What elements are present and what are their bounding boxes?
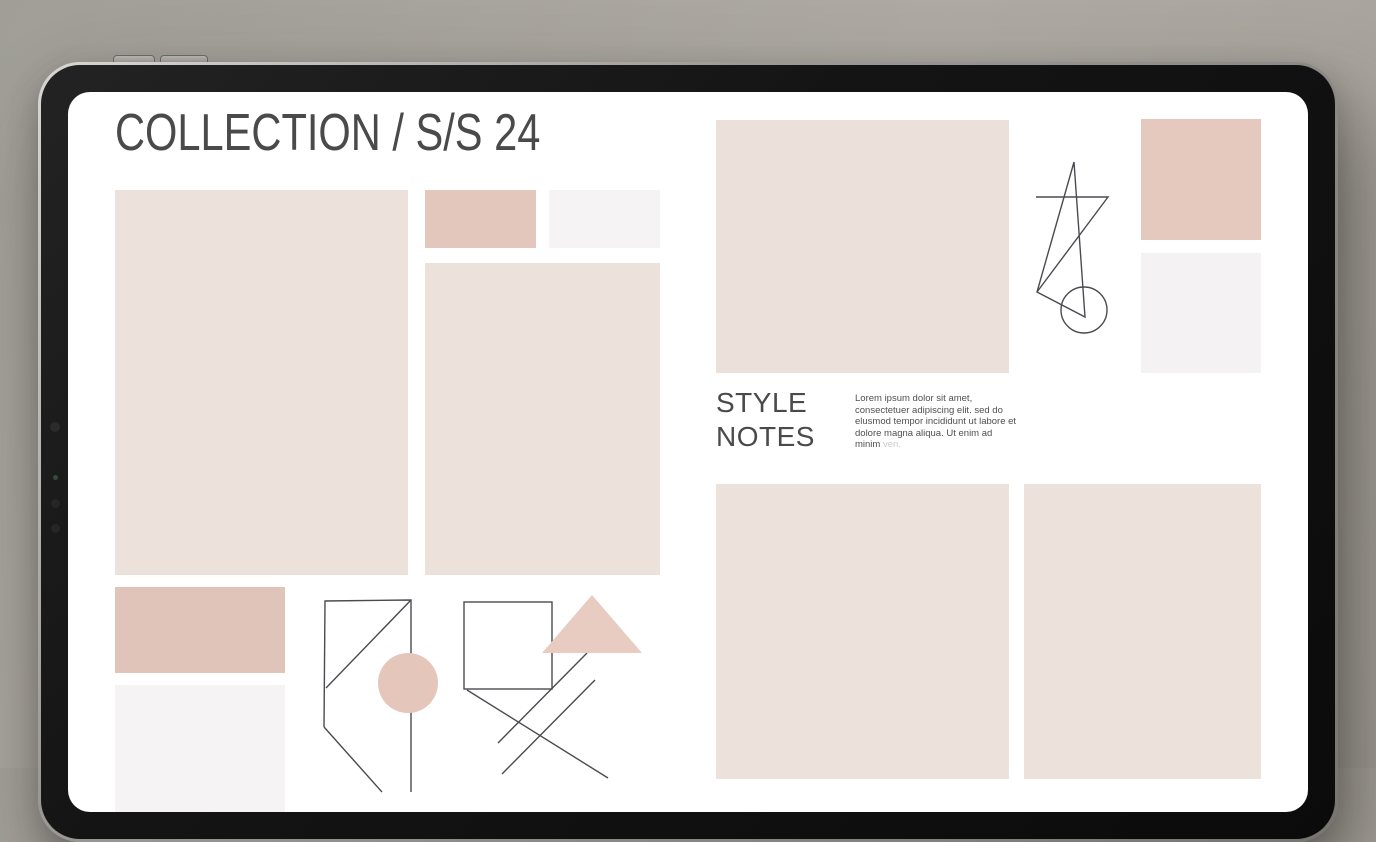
camera-indicator-icon (53, 475, 58, 480)
style-notes-heading-line2: NOTES (716, 421, 815, 452)
moodboard-swatch-bottom-left (716, 484, 1009, 779)
line-art-pentagon-circle-figure (324, 600, 438, 792)
moodboard-swatch-top-right-pink (1141, 119, 1261, 240)
front-camera-icon (50, 422, 60, 432)
moodboard-swatch-mid-pink (425, 190, 536, 248)
moodboard-swatch-mid-gray (549, 190, 660, 248)
moodboard-swatch-left-large (115, 190, 408, 575)
moodboard-swatch-bottom-right (1024, 484, 1261, 779)
tablet-device: COLLECTION / S/S 24 (38, 62, 1338, 842)
sensor-dot-icon (51, 524, 60, 533)
moodboard-swatch-mid-tall (425, 263, 660, 575)
line-art-square-triangle-figure (464, 595, 642, 778)
pink-triangle-shape (542, 595, 642, 653)
moodboard-swatch-left-pink (115, 587, 285, 673)
pink-circle-shape (378, 653, 438, 713)
tablet-screen: COLLECTION / S/S 24 (68, 92, 1308, 812)
sensor-dot-icon (51, 499, 60, 508)
style-notes-body: Lorem ipsum dolor sit amet, consectetuer… (855, 393, 1017, 451)
moodboard-swatch-top-right-gray (1141, 253, 1261, 373)
style-notes-heading: STYLENOTES (716, 386, 815, 454)
page-title: COLLECTION / S/S 24 (115, 106, 540, 161)
style-notes-heading-line1: STYLE (716, 387, 807, 418)
line-art-abstract-star-figure (1036, 162, 1108, 333)
style-notes-text: Lorem ipsum dolor sit amet, consectetuer… (855, 393, 1016, 450)
moodboard-swatch-right-large (716, 120, 1009, 373)
tablet-bezel: COLLECTION / S/S 24 (41, 65, 1335, 839)
style-notes-faint-text: ven. (883, 439, 901, 450)
moodboard-swatch-left-gray (115, 685, 285, 812)
